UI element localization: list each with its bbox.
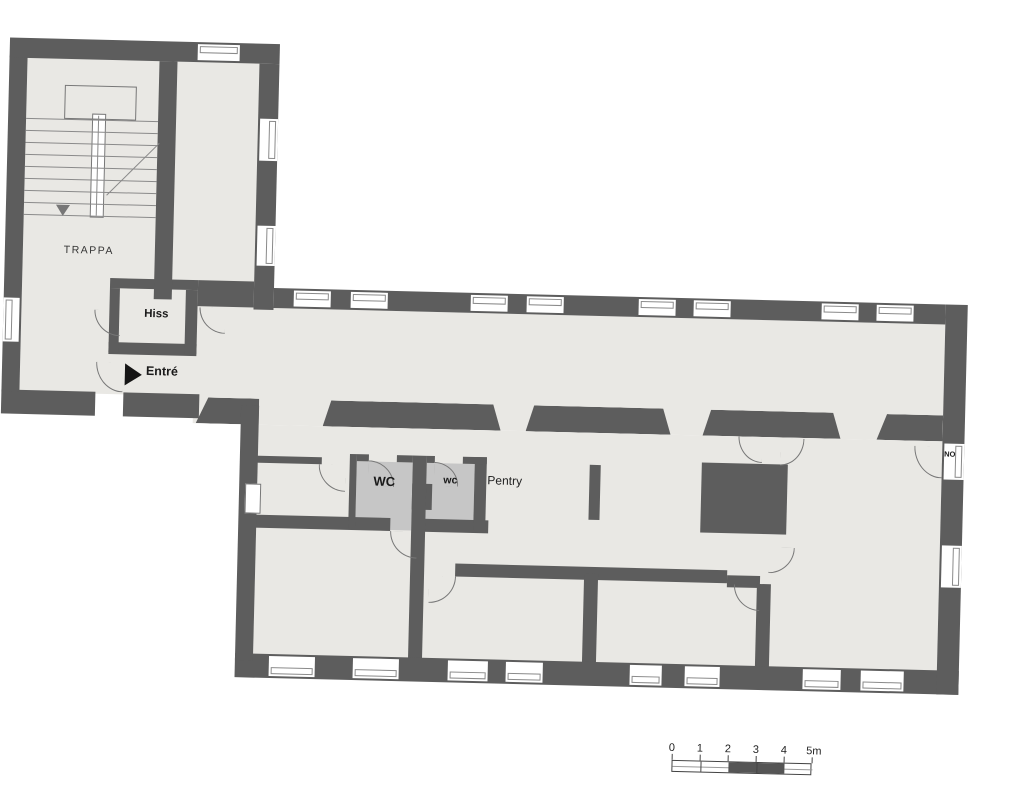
window-south-1	[269, 656, 315, 677]
window-south-8	[860, 670, 903, 691]
window-pane	[641, 301, 674, 309]
wall-seg-3	[703, 410, 842, 439]
window-corridor-7	[821, 303, 858, 320]
wall-hiss-right	[184, 290, 198, 354]
room-label-wc-small: wc	[426, 474, 474, 487]
wall-entry-bottom-b	[123, 392, 200, 418]
scale-tick-label: 0	[662, 742, 682, 754]
wall-hiss-bottom	[108, 342, 196, 356]
window-pane	[952, 548, 960, 586]
room-label-pantry: Pentry	[487, 473, 553, 489]
wall-seg-1	[323, 400, 502, 430]
scale-bar-divider	[700, 762, 701, 772]
window-pane	[529, 298, 562, 306]
window-pane	[804, 680, 838, 688]
room-label-elevator: Hiss	[129, 308, 183, 321]
window-south-6	[684, 666, 719, 687]
scale-tick-label: 5m	[804, 745, 824, 757]
scale-tick-label: 2	[718, 743, 738, 755]
window-corridor-3	[471, 295, 508, 312]
wall-niche	[244, 483, 261, 513]
window-pane	[355, 669, 397, 677]
wall-stub-pentry	[588, 465, 600, 520]
window-pane	[955, 446, 963, 478]
scale-tick	[812, 757, 813, 763]
wall-entry-bottom-a	[1, 389, 96, 415]
wall-v2	[582, 574, 598, 669]
scale-tick-label: 1	[690, 742, 710, 754]
wall-seg-east	[876, 414, 943, 442]
window-pane	[824, 305, 857, 313]
window-block-top	[198, 44, 240, 61]
wall-wc-top-d	[463, 457, 487, 465]
window-corridor-4	[526, 296, 563, 313]
window-pane	[5, 299, 13, 339]
window-block-right-2	[257, 226, 276, 266]
window-right-2	[941, 545, 962, 587]
wall-wc-right	[473, 457, 487, 532]
window-corridor-1	[294, 291, 331, 308]
window-pane	[271, 667, 313, 675]
wall-right-room-bottom	[198, 280, 255, 307]
door-label-partial: NO	[944, 449, 955, 458]
window-pane	[200, 46, 238, 54]
window-corridor-2	[351, 292, 388, 309]
window-corridor-6	[693, 300, 730, 317]
window-pane	[266, 228, 274, 264]
window-pane	[631, 676, 659, 684]
wall-wc-top-a	[357, 454, 369, 461]
stair-landing-outline	[64, 85, 137, 121]
wall-wc-top-b	[397, 455, 413, 462]
window-pane	[268, 121, 276, 159]
room-label-stairwell: TRAPPA	[51, 244, 127, 258]
window-corridor-5	[638, 299, 675, 316]
window-south-7	[802, 669, 840, 690]
room-label-wc-large: WC	[356, 473, 412, 489]
window-pane	[686, 677, 717, 685]
scale-bar-frame	[671, 760, 811, 775]
scale-tick-label: 4	[774, 744, 794, 756]
room-label-entrance: Entré	[146, 364, 178, 379]
window-south-4	[505, 662, 542, 683]
stair-direction-arrow-icon	[56, 205, 70, 216]
window-pane	[508, 673, 541, 681]
floor-plan-page: TRAPPA Hiss Entré WC wc Pentry NO 0 1 2 …	[0, 0, 1024, 796]
window-pane	[296, 293, 329, 301]
wall-seg-2	[526, 405, 672, 435]
window-pane	[473, 297, 506, 305]
wall-shaft-frame	[700, 463, 788, 535]
floor-plan: TRAPPA Hiss Entré WC wc Pentry NO 0 1 2 …	[0, 0, 1024, 796]
window-entry-left	[3, 297, 20, 341]
window-south-2	[353, 658, 399, 679]
entrance-arrow-icon	[125, 363, 143, 385]
wall-wc-top-c	[427, 456, 435, 463]
window-pane	[879, 307, 912, 315]
scale-tick-label: 3	[746, 744, 766, 756]
scale-bar: 0 1 2 3 4 5m	[670, 742, 831, 780]
window-pane	[862, 682, 901, 690]
window-pane	[353, 294, 386, 302]
window-pane	[450, 671, 486, 679]
window-south-5	[629, 665, 661, 686]
window-pane	[696, 302, 729, 310]
window-block-right-1	[259, 119, 278, 161]
window-corridor-8	[876, 305, 913, 322]
window-south-3	[447, 660, 487, 681]
